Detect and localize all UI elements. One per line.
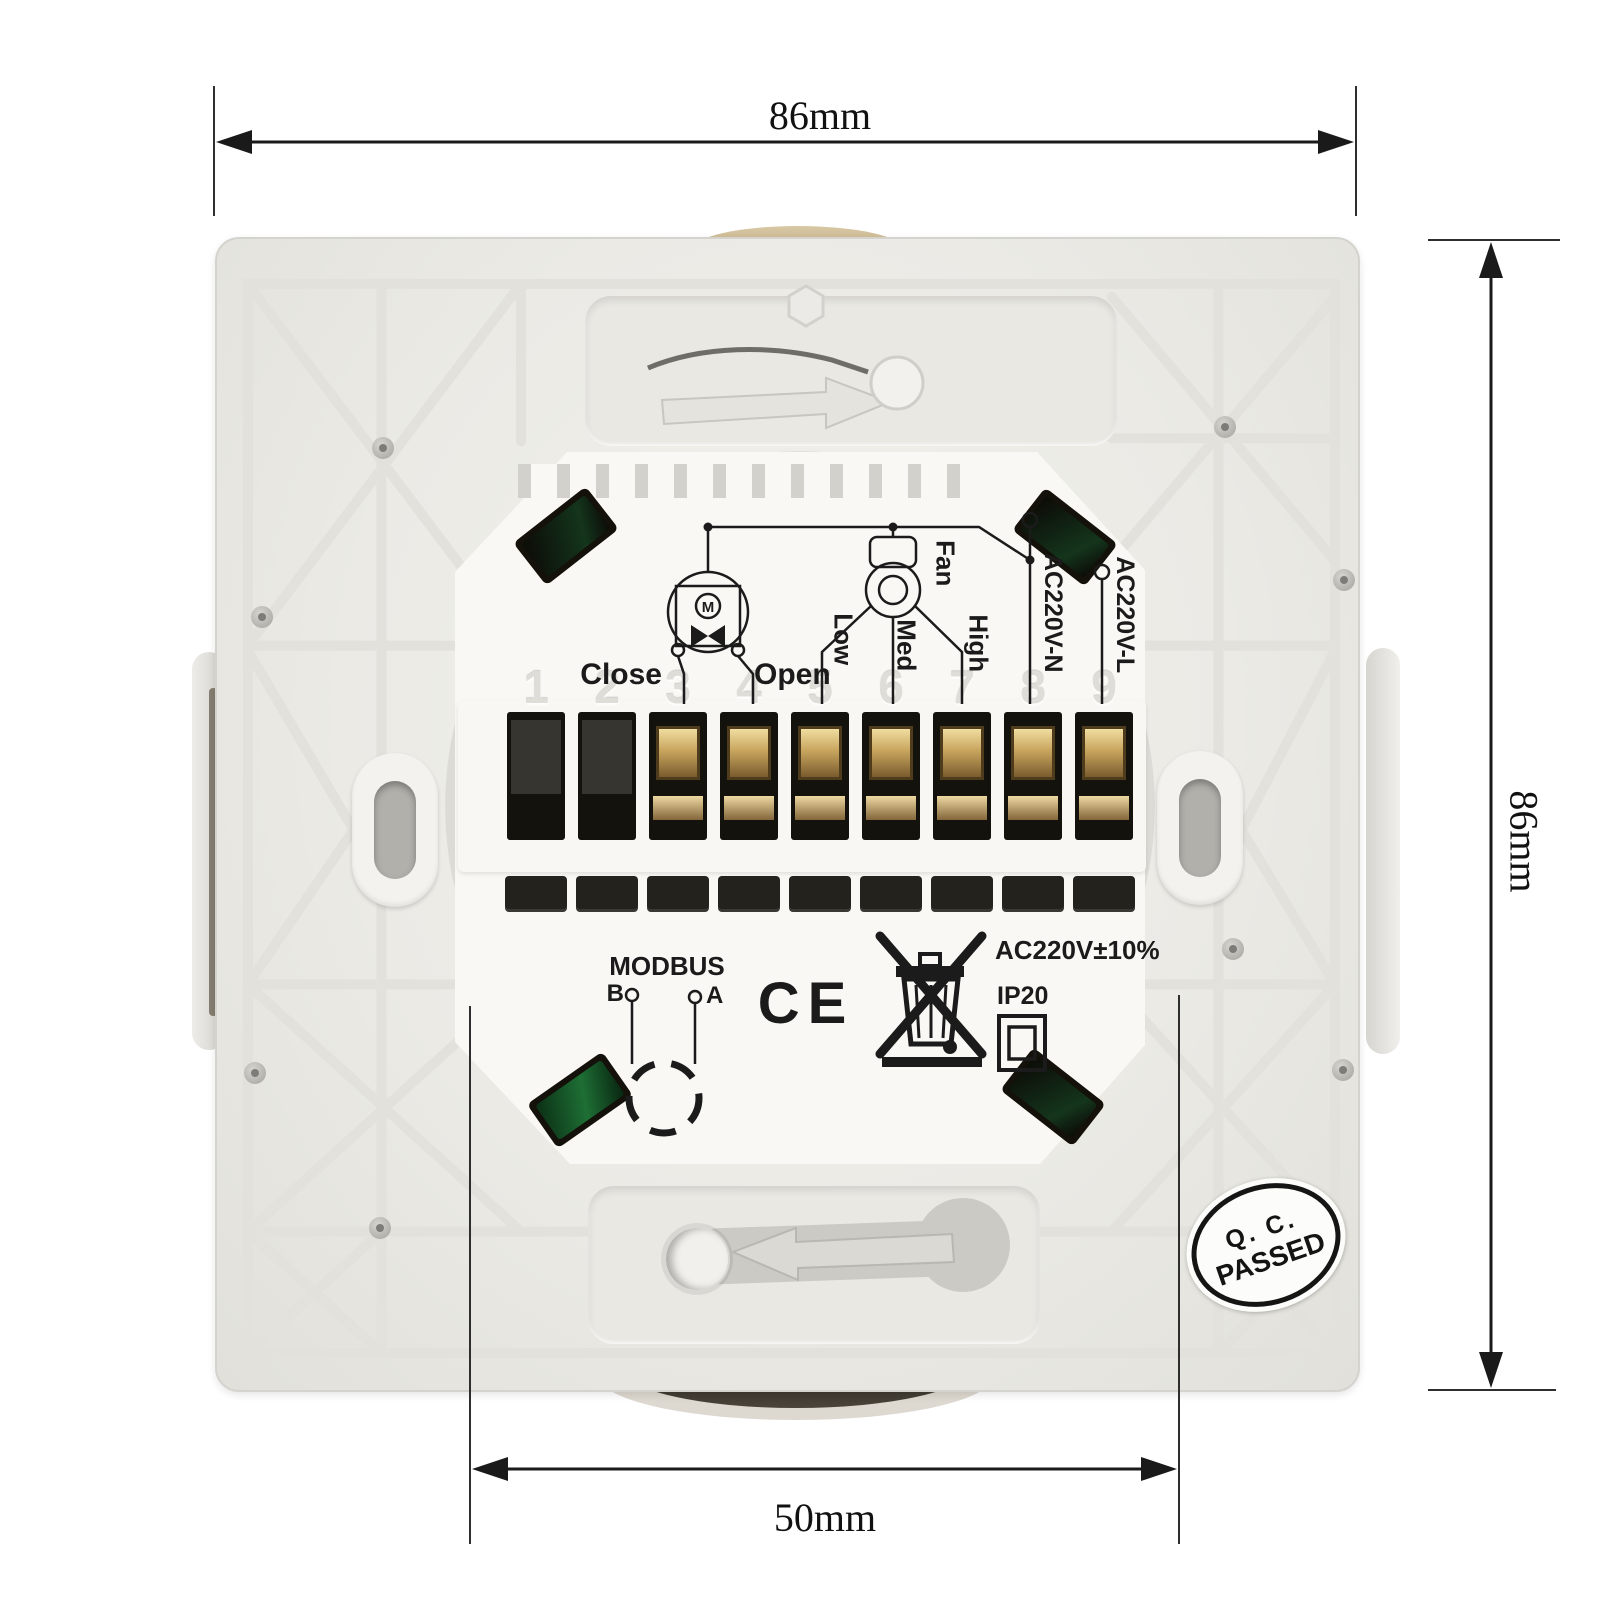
dimension-annotations bbox=[0, 0, 1601, 1601]
width-dimension-label: 86mm bbox=[720, 92, 920, 139]
spacing-dimension-label: 50mm bbox=[725, 1494, 925, 1541]
bottom-spacing-dimension bbox=[470, 995, 1179, 1544]
height-dimension-label: 86mm bbox=[1501, 762, 1548, 922]
product-photo-thermostat-back: 1 2 3 4 5 6 7 8 9 bbox=[0, 0, 1601, 1601]
